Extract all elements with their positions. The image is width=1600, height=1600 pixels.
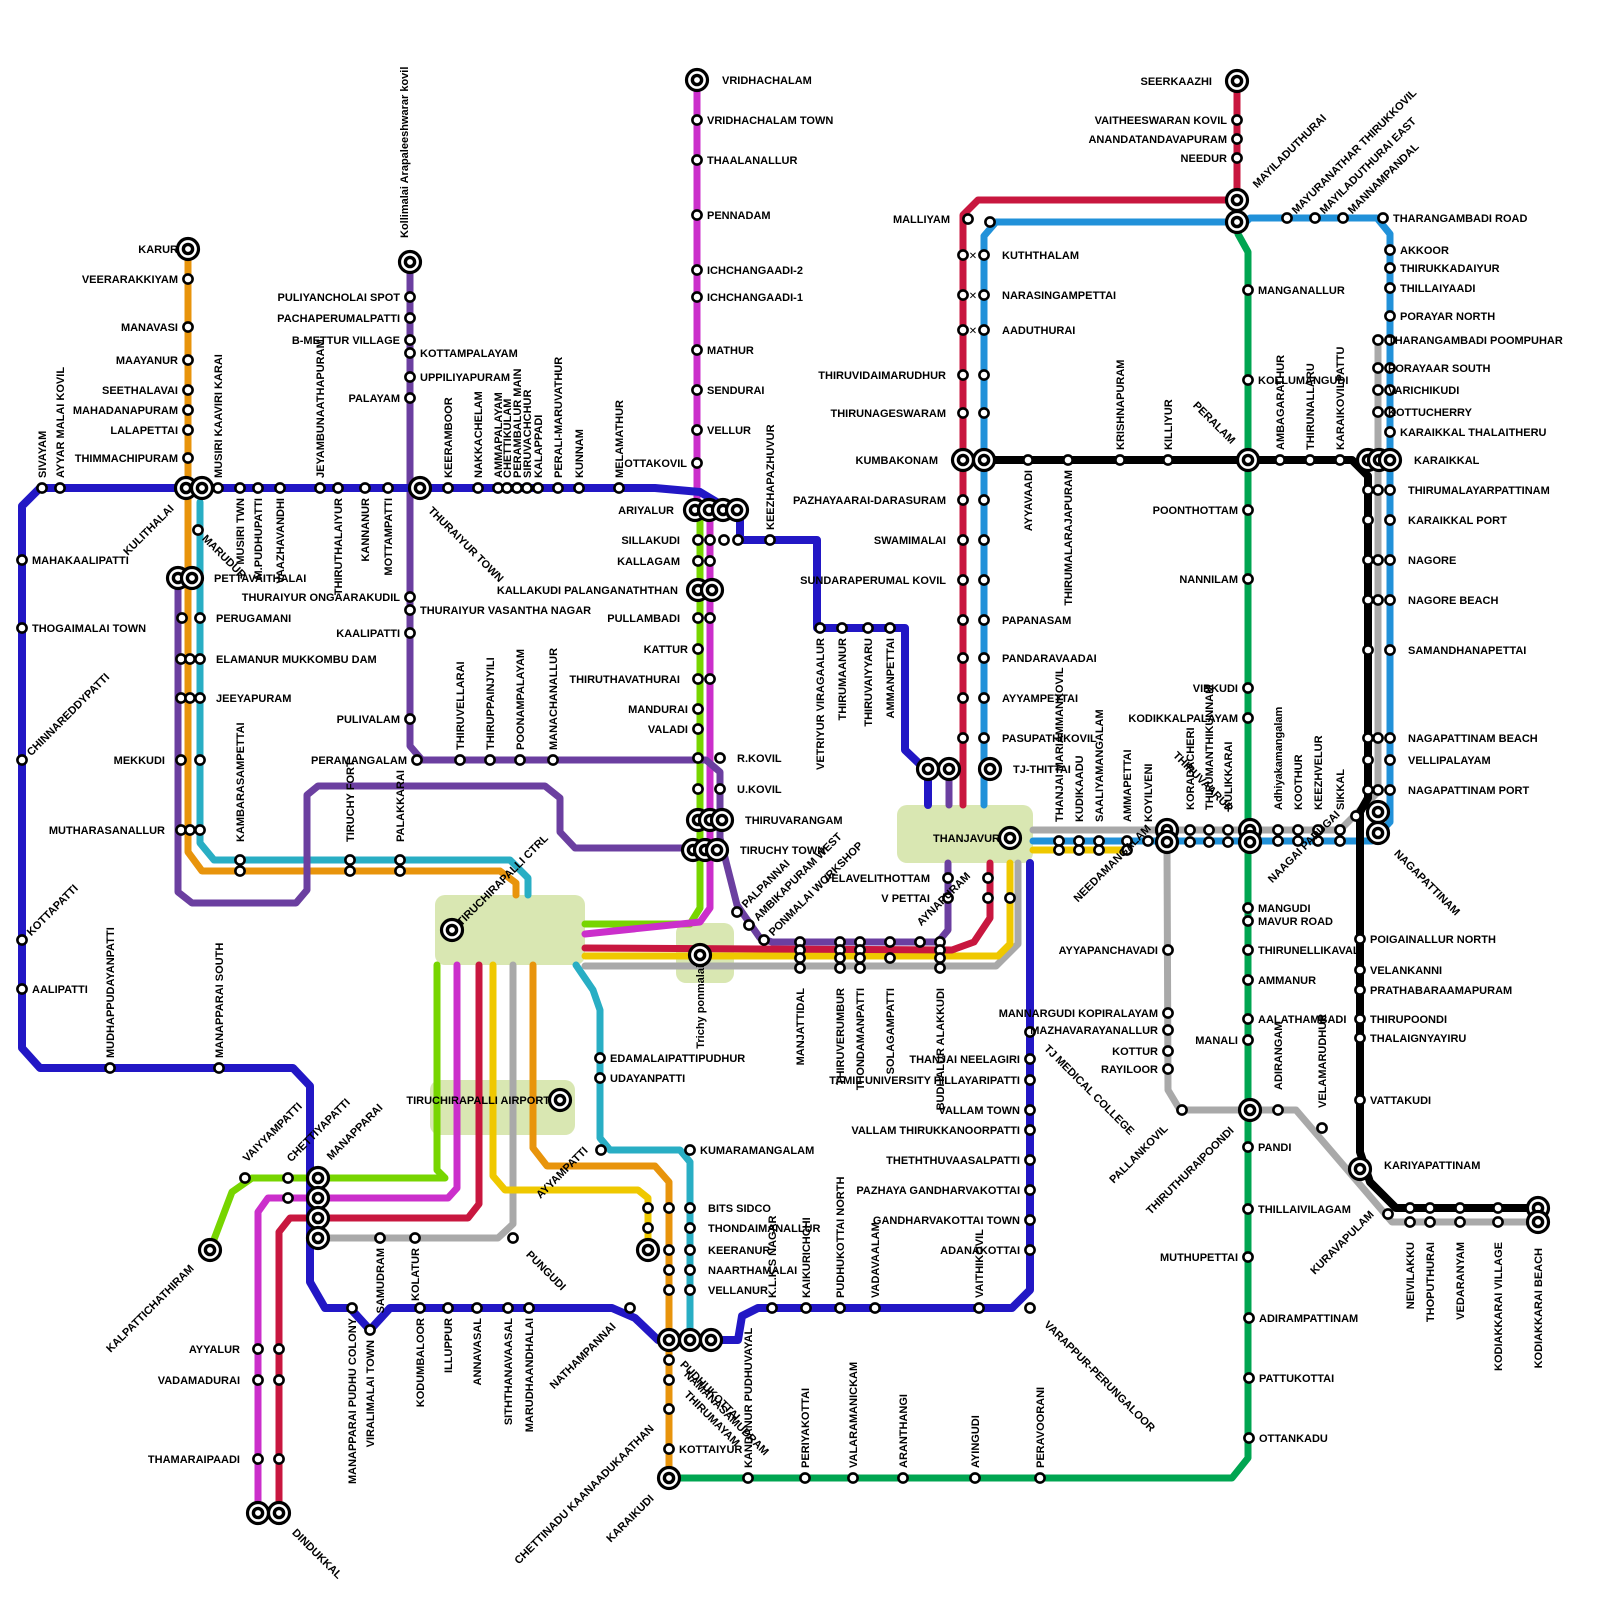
- station-label: THIRUPPAINJYILI: [485, 657, 497, 750]
- station-mangudi[interactable]: [1243, 903, 1252, 912]
- station-label: NEEDAMANGALAM: [1072, 823, 1154, 905]
- station-palakkarai[interactable]: [395, 855, 404, 875]
- station-tharangambadi-road[interactable]: [1378, 213, 1387, 222]
- station-mayiladuthurai-east[interactable]: [1310, 213, 1319, 222]
- station-melamathur[interactable]: [614, 483, 623, 492]
- station-kulithalai[interactable]: [176, 478, 213, 499]
- station-ayyar-malai-kovil[interactable]: [55, 483, 64, 492]
- station-koradacheri[interactable]: [1185, 825, 1194, 846]
- station-perali-maruvathur[interactable]: [553, 483, 562, 492]
- station-nakkachelam[interactable]: [473, 483, 482, 492]
- station-muthupettai[interactable]: [1243, 1252, 1252, 1261]
- station-manjattidal[interactable]: [795, 937, 804, 972]
- station-samudram[interactable]: [375, 1233, 384, 1242]
- station-aranthangi[interactable]: [898, 1473, 907, 1482]
- station-label: KOTTAMPALAYAM: [420, 348, 518, 360]
- station-kambarasampettai[interactable]: [235, 855, 244, 875]
- station-kannanur[interactable]: [360, 483, 369, 492]
- station-ariyalur[interactable]: [685, 500, 748, 521]
- station-kaalipatti[interactable]: [405, 628, 414, 637]
- station-label: KOTTAPATTI: [25, 883, 81, 939]
- route-cyan-trichy-pudhukottai[interactable]: [576, 965, 690, 1340]
- station-kunnam[interactable]: [574, 483, 583, 492]
- station-nagapattinam-port[interactable]: [1363, 785, 1394, 794]
- station-maayanur[interactable]: [183, 355, 192, 364]
- station-bits-sidco[interactable]: [643, 1203, 694, 1212]
- station-label: KRISHNAPURAM: [1115, 360, 1127, 450]
- station-label: PULLAMBADI: [607, 613, 680, 625]
- station-malliyam[interactable]: [963, 214, 994, 226]
- station-thirunallaru[interactable]: [1305, 455, 1314, 464]
- station-mutharasanallur[interactable]: [176, 825, 204, 834]
- station-label: MANNARGUDI KOPIRALAYAM: [999, 1008, 1158, 1020]
- station-label: MUSIRI KAAVIRI KARAI: [213, 354, 225, 478]
- station-label: MAYURANATHAR THIRUKKOVIL: [1290, 87, 1420, 217]
- station-label: KUTHTHALAM: [1002, 250, 1079, 262]
- station-thondamanpatti[interactable]: [855, 937, 864, 972]
- station-label: U.KOVIL: [737, 784, 782, 796]
- station-ammanur[interactable]: [1243, 975, 1252, 984]
- station-manapparai-south[interactable]: [214, 1063, 223, 1072]
- station-mandurai[interactable]: [693, 704, 702, 713]
- station-kodiakkarai-beach[interactable]: [1528, 1198, 1549, 1233]
- station-elamanur-mukkombu-dam[interactable]: [176, 654, 204, 663]
- station-mayiladuthurai[interactable]: [1227, 190, 1248, 233]
- station-vallam-thirukkanoorpatti[interactable]: [1025, 1125, 1034, 1134]
- station-karur[interactable]: [178, 239, 199, 260]
- station-thiruvarangam[interactable]: [688, 810, 733, 831]
- station-karaikkal[interactable]: [1358, 450, 1401, 471]
- station-prathabaraamapuram[interactable]: [1355, 985, 1364, 994]
- station-box-marker-tiruchirapalli-airport[interactable]: [550, 1090, 571, 1111]
- station-ottankadu[interactable]: [1244, 1433, 1253, 1442]
- station-kottampalayam[interactable]: [405, 348, 414, 357]
- station-label: THIRUTHALAIYUR: [333, 498, 345, 595]
- station-annavasal[interactable]: [472, 1303, 481, 1312]
- station-tiruchy-fort[interactable]: [345, 855, 354, 875]
- station-ayyampettai[interactable]: [958, 693, 988, 702]
- station-mannampandal[interactable]: [1338, 213, 1347, 222]
- station-theththuvaasalpatti[interactable]: [1025, 1155, 1034, 1164]
- station-vellur[interactable]: [692, 425, 701, 434]
- station-label: THANJAVUR: [933, 833, 1000, 845]
- station-papanasam[interactable]: [958, 615, 988, 624]
- station-label: NAARTHAMALAI: [708, 1265, 797, 1277]
- station-label: PALAKKARAI: [395, 770, 407, 842]
- route-lime-ariyalur-trichy[interactable]: [585, 512, 700, 924]
- station-velankanni[interactable]: [1355, 965, 1364, 974]
- station-siththanavaasal[interactable]: [503, 1303, 512, 1312]
- station-kodiakkarai-village[interactable]: [1493, 1203, 1502, 1226]
- station-sikkal[interactable]: [1335, 825, 1344, 845]
- station-aynapuram[interactable]: [915, 937, 924, 946]
- station-swamimalai[interactable]: [958, 535, 988, 544]
- station-aalathambadi[interactable]: [1243, 1014, 1252, 1023]
- station-kulikkarai[interactable]: [1223, 825, 1232, 846]
- station-label: NAAGAI PADUGAI: [1266, 809, 1343, 886]
- station-label: OTTANKADU: [1259, 1433, 1328, 1445]
- station-thirumalarajapuram[interactable]: [1063, 455, 1072, 464]
- station-manali[interactable]: [1243, 1035, 1252, 1044]
- station-ottakovil[interactable]: [692, 458, 701, 467]
- station-ambikapuram-west[interactable]: [744, 920, 753, 929]
- station-thalaignyayiru[interactable]: [1355, 1033, 1364, 1042]
- station-label: PERALAM: [1190, 400, 1237, 447]
- station-jeyambunaathapuram[interactable]: [315, 483, 324, 492]
- station-label: KODIKKALPALAYAM: [1128, 713, 1238, 725]
- station-poonthottam[interactable]: [1243, 505, 1252, 514]
- station-killiyur[interactable]: [1163, 455, 1172, 464]
- station-mahadanapuram[interactable]: [183, 405, 192, 414]
- station-vedaranyam[interactable]: [1455, 1203, 1464, 1226]
- station-pudhukottai[interactable]: [659, 1330, 722, 1351]
- station-veerarakkiyam[interactable]: [183, 274, 192, 283]
- station-manganallur[interactable]: [1243, 285, 1252, 294]
- station-mottampatti[interactable]: [383, 483, 392, 492]
- station-label: VADAMADURAI: [158, 1375, 240, 1387]
- station-label: Trichy ponmalai: [695, 965, 707, 1049]
- station-kodikkalpalayam[interactable]: [1243, 713, 1252, 722]
- station-label: PASUPATHIKOVIL: [1002, 733, 1097, 745]
- station-vridhachalam[interactable]: [687, 70, 708, 91]
- station-label: MANALI: [1195, 1035, 1238, 1047]
- station-nagapattinam-beach[interactable]: [1363, 733, 1394, 742]
- station-kalpattichathiram[interactable]: [200, 1240, 221, 1261]
- station-label: SAMUDRAM: [375, 1248, 387, 1313]
- station-mavur-road[interactable]: [1243, 916, 1252, 925]
- station-thuraiyur-town[interactable]: [410, 478, 431, 499]
- station-uppiliyapuram[interactable]: [405, 372, 414, 381]
- station-label: PUNGUDI: [523, 1249, 567, 1293]
- station-vallam-town[interactable]: [1025, 1105, 1034, 1114]
- station-label: THIRUMALARAJAPURAM: [1063, 470, 1075, 606]
- station-mazhavarayanallur[interactable]: [1163, 1025, 1172, 1034]
- station-label: PRATHABARAAMAPURAM: [1370, 985, 1512, 997]
- station-poonampalayam[interactable]: [515, 755, 524, 764]
- station-tj-thittai[interactable]: [918, 759, 1001, 780]
- station-pattukottai[interactable]: [1244, 1373, 1253, 1382]
- station-peramangalam[interactable]: [412, 755, 421, 764]
- station-porayar-north[interactable]: [1385, 311, 1394, 320]
- station-ponmalai-workshop[interactable]: [759, 935, 768, 944]
- station-palayam[interactable]: [405, 393, 414, 402]
- station-adirangam[interactable]: [1273, 1105, 1282, 1114]
- station-thirumayam[interactable]: [664, 1375, 673, 1384]
- route-purple-pettavaithalai-tiruchytown[interactable]: [178, 582, 690, 903]
- station-label: AYYAVAADI: [1023, 470, 1035, 531]
- station-label: KARAIKKAL: [1414, 455, 1480, 467]
- station-label: THIRUNAGESWARAM: [831, 408, 947, 420]
- station-seerkaazhi[interactable]: [1227, 71, 1248, 92]
- station-naagai-padugai[interactable]: [1351, 811, 1360, 820]
- station-thiruvaiyyaru[interactable]: [863, 623, 872, 632]
- station-ambagarathur[interactable]: [1275, 455, 1284, 464]
- station-jeeyapuram[interactable]: [176, 693, 204, 702]
- station-pullambadi[interactable]: [693, 613, 714, 622]
- station-nathampannai[interactable]: [625, 1303, 634, 1312]
- station-seethalavai[interactable]: [183, 385, 192, 394]
- station-label: PALLANKOVIL: [1107, 1123, 1170, 1186]
- station-label: NARASINGAMPETTAI: [1002, 290, 1116, 302]
- station-virkudi[interactable]: [1243, 683, 1252, 692]
- station-thanjai-mariammankovil[interactable]: [1054, 836, 1063, 854]
- station-mayuranathar-thirukkovil[interactable]: [1282, 213, 1291, 222]
- station-kariyapattinam[interactable]: [1350, 1159, 1371, 1180]
- station-pandaravaadai[interactable]: [958, 653, 988, 662]
- station-thogaimalai-town[interactable]: [17, 623, 26, 632]
- station-varappur-perungaloor[interactable]: [1025, 1303, 1034, 1312]
- station-label: SEERKAAZHI: [1140, 76, 1212, 88]
- station-thiruverumbur[interactable]: [835, 937, 844, 972]
- station-kottur[interactable]: [1163, 1046, 1172, 1055]
- station-velamarudhur[interactable]: [1317, 1123, 1326, 1132]
- station-chettikulam[interactable]: [502, 483, 511, 492]
- station-peravoorani[interactable]: [1035, 1473, 1044, 1482]
- station-kattur[interactable]: [693, 644, 702, 653]
- station-akkoor[interactable]: [1385, 245, 1394, 254]
- station-label: KURAVAPULAM: [1308, 1209, 1376, 1277]
- station-label: CHINNAREDDYPATTI: [25, 671, 112, 758]
- station-label: B-METTUR VILLAGE: [292, 335, 400, 347]
- station-chinnareddypatti[interactable]: [17, 755, 26, 764]
- station-nagore[interactable]: [1363, 555, 1394, 564]
- station-thoputhurai[interactable]: [1425, 1203, 1434, 1226]
- station-ayyalur[interactable]: [253, 1344, 283, 1353]
- station-label: THOGAIMALAI TOWN: [32, 623, 146, 635]
- station-m-pudhupatti[interactable]: [253, 483, 262, 492]
- station-label: KALPATTICHATHIRAM: [104, 1263, 196, 1355]
- station-neivilakku[interactable]: [1405, 1203, 1414, 1226]
- station-pungudi[interactable]: [508, 1233, 517, 1242]
- station-marudhaandhalai[interactable]: [524, 1303, 533, 1312]
- station-vaithikovil[interactable]: [974, 1303, 983, 1312]
- station-mahakaalipatti[interactable]: [17, 555, 26, 564]
- station-budhalur-alakkudi[interactable]: [935, 937, 944, 972]
- station-karaikkal-thalaitheru[interactable]: [1385, 427, 1394, 436]
- station-box-marker-thanjavur[interactable]: [1000, 828, 1021, 849]
- station-mathur[interactable]: [692, 345, 701, 354]
- station-pasupathikovil[interactable]: [958, 733, 988, 742]
- station-thiruthuraipoondi[interactable]: [1240, 1100, 1261, 1121]
- station-thiruthavathurai[interactable]: [693, 674, 714, 683]
- station-manapparai-pudhu-colony[interactable]: [347, 1303, 356, 1312]
- station-ichchangaadi-1[interactable]: [692, 292, 701, 301]
- station-edamalaipattipudhur[interactable]: [595, 1053, 604, 1062]
- station-naarthamalai[interactable]: [664, 1265, 694, 1274]
- station-label: VRIDHACHALAM TOWN: [707, 115, 833, 127]
- station-keezhapazhuvur[interactable]: [765, 535, 774, 544]
- station-siruvachchur[interactable]: [522, 483, 531, 492]
- station-label: ICHCHANGAADI-1: [707, 292, 803, 304]
- station-ayyavaadi[interactable]: [1023, 455, 1032, 464]
- transfer-x-icon: ✕: [969, 291, 977, 302]
- station-vridhachalam-town[interactable]: [692, 115, 701, 124]
- station-anandatandavapuram[interactable]: [1232, 134, 1241, 143]
- station-viralimalai-town[interactable]: [365, 1325, 374, 1334]
- station-valaramanickam[interactable]: [848, 1473, 857, 1482]
- station-adanakottai[interactable]: [1025, 1245, 1034, 1254]
- station-k-l-k-s-nagar[interactable]: [767, 1303, 776, 1312]
- station-thaalanallur[interactable]: [692, 155, 701, 164]
- station-kandanur-pudhuvayal[interactable]: [743, 1473, 752, 1482]
- station-label: KOTTUCHERRY: [1388, 407, 1473, 419]
- station-thimmachipuram[interactable]: [183, 453, 192, 462]
- station-saaliyamangalam[interactable]: [1094, 836, 1103, 854]
- station-rayiloor[interactable]: [1163, 1064, 1172, 1073]
- station-vaazhavandhi[interactable]: [275, 483, 284, 492]
- station-dindukkal[interactable]: [248, 1503, 290, 1524]
- station-adirampattinam[interactable]: [1244, 1313, 1253, 1322]
- station-kollimalai-arapaleeshwarar-kovil[interactable]: [400, 252, 421, 273]
- station-vellanur[interactable]: [664, 1285, 694, 1294]
- station-kallagam[interactable]: [693, 556, 714, 565]
- station-mannargudi-kopiralayam[interactable]: [1163, 1008, 1172, 1017]
- station-ayingudi[interactable]: [970, 1473, 979, 1482]
- station-ayyampatti[interactable]: [596, 1145, 605, 1154]
- station-kottaiyur[interactable]: [664, 1444, 673, 1453]
- station-label: KATTUR: [644, 644, 688, 656]
- station-marudur[interactable]: [193, 525, 202, 534]
- station-sendurai[interactable]: [692, 385, 701, 394]
- station-label: KEERANUR: [708, 1245, 770, 1257]
- station-valadi[interactable]: [693, 724, 702, 733]
- station-pazhayaarai-darasuram[interactable]: [958, 495, 988, 504]
- station-namanasamudram[interactable]: [664, 1355, 673, 1364]
- station-label: PERAVOORANI: [1035, 1387, 1047, 1468]
- station-kaikurichchi[interactable]: [801, 1303, 810, 1312]
- station-pazhaya-gandharvakottai[interactable]: [1025, 1185, 1034, 1194]
- station-sivayam[interactable]: [37, 483, 46, 492]
- station-musiri-twn[interactable]: [235, 483, 244, 492]
- station-label: KODUMBALOOR: [415, 1318, 427, 1407]
- station-ayyapanchavadi[interactable]: [1163, 945, 1172, 954]
- station-vaitheeswaran-kovil[interactable]: [1232, 115, 1241, 124]
- station-chettinadu-kaanaadukaathan[interactable]: [664, 1404, 673, 1413]
- station-pudhukottai-north[interactable]: [835, 1303, 844, 1312]
- station-pandi[interactable]: [1243, 1142, 1252, 1151]
- station-thillaiyaadi[interactable]: [1385, 283, 1394, 292]
- station-label: THIRUNELLIKAVAL: [1258, 945, 1360, 957]
- station-thamaraipaadi[interactable]: [253, 1454, 283, 1463]
- station-thirumaanur[interactable]: [837, 623, 846, 632]
- station-karaikudi[interactable]: [659, 1468, 680, 1489]
- station-thuraiyur-ongaarakudil[interactable]: [405, 592, 414, 601]
- station-label: SWAMIMALAI: [874, 535, 946, 547]
- station-udayanpatti[interactable]: [595, 1073, 604, 1082]
- station-tamil-university-pillayaripatti[interactable]: [1025, 1075, 1034, 1084]
- station-label: NAGORE BEACH: [1408, 595, 1499, 607]
- station-musiri-kaaviri-karai[interactable]: [213, 483, 222, 492]
- station-pachaperumalpatti[interactable]: [405, 313, 414, 322]
- station-sundaraperumal-kovil[interactable]: [958, 575, 988, 584]
- station-sillakudi[interactable]: [693, 535, 742, 544]
- station-vaiyyampatti[interactable]: [240, 1173, 249, 1182]
- station-keeramboor[interactable]: [443, 483, 452, 492]
- station-kumaramangalam[interactable]: [685, 1145, 694, 1154]
- station-nagore-beach[interactable]: [1363, 595, 1394, 604]
- station-kalappadi[interactable]: [533, 483, 542, 492]
- station-manachanallur[interactable]: [548, 755, 557, 764]
- station-thiruvaarur[interactable]: [1240, 820, 1261, 853]
- station-pettavaithalai[interactable]: [168, 568, 203, 589]
- station-illuppur[interactable]: [443, 1303, 452, 1312]
- station-palpannai[interactable]: [732, 907, 741, 916]
- station-vetriyur-viragaalur[interactable]: [815, 623, 824, 632]
- station-label: PORAYAAR SOUTH: [1388, 363, 1491, 375]
- station-vadavaalam[interactable]: [870, 1303, 879, 1312]
- station-adhiyakamangalam[interactable]: [1273, 825, 1282, 845]
- station-peralam[interactable]: [1238, 450, 1259, 471]
- station-lalapettai[interactable]: [183, 425, 192, 434]
- station-pulivalam[interactable]: [405, 714, 414, 723]
- station-ichchangaadi-2[interactable]: [692, 265, 701, 274]
- station-manavasi[interactable]: [183, 322, 192, 331]
- station-label: VELLANUR: [708, 1285, 768, 1297]
- station-thirupoondi[interactable]: [1355, 1014, 1364, 1023]
- station-kumbakonam[interactable]: [953, 450, 995, 471]
- station-b-mettur-village[interactable]: [405, 335, 414, 344]
- station-label: PAPANASAM: [1002, 615, 1071, 627]
- station-vadamadurai[interactable]: [253, 1375, 283, 1384]
- station-pallankovil[interactable]: [1177, 1105, 1186, 1114]
- station-kottapatti[interactable]: [17, 935, 26, 944]
- station-thillaivilagam[interactable]: [1243, 1204, 1252, 1213]
- station-aalipatti[interactable]: [17, 984, 26, 993]
- station-kudikaadu[interactable]: [1074, 836, 1083, 854]
- station-thirukkadaiyur[interactable]: [1385, 263, 1394, 272]
- station-perambalur-main[interactable]: [512, 483, 521, 492]
- station-thiruppainjyili[interactable]: [485, 755, 494, 764]
- station-label: AMMANUR: [1258, 975, 1316, 987]
- station-thirumanthikunnam[interactable]: [1204, 825, 1213, 846]
- station-thirunellikaval[interactable]: [1243, 945, 1252, 954]
- station-kollumangudi[interactable]: [1243, 375, 1252, 384]
- station-label: THILLAIVILAGAM: [1258, 1204, 1351, 1216]
- station-needamangalam[interactable]: [1157, 820, 1178, 853]
- station-kodumbaloor[interactable]: [415, 1303, 424, 1312]
- station-thuraiyur-vasantha-nagar[interactable]: [405, 605, 414, 614]
- station-krishnapuram[interactable]: [1115, 455, 1124, 464]
- station-periyakottai[interactable]: [800, 1473, 809, 1482]
- station-tiruchy-town[interactable]: [683, 840, 728, 861]
- station-gandharvakottai-town[interactable]: [1025, 1215, 1034, 1224]
- station-karaikovilpattu[interactable]: [1335, 455, 1344, 464]
- station-thiruvidaimarudhur[interactable]: [958, 370, 988, 379]
- station-nannilam[interactable]: [1243, 574, 1252, 583]
- station-puliyancholai-spot[interactable]: [405, 292, 414, 301]
- route-lime-trichy-kalpattichathiram[interactable]: [210, 965, 445, 1250]
- station-thirumalayarpattinam[interactable]: [1363, 485, 1394, 494]
- station-thanjai-neelagiri[interactable]: [1025, 1054, 1034, 1063]
- station-vattakudi[interactable]: [1355, 1095, 1364, 1104]
- station-chettiyapatti[interactable]: [283, 1173, 292, 1202]
- station-pennadam[interactable]: [692, 210, 701, 219]
- station-kallakudi-palanganaththan[interactable]: [688, 580, 723, 601]
- station-thiruthalaiyur[interactable]: [333, 483, 342, 492]
- station-ammanpettai[interactable]: [885, 623, 894, 632]
- station-label: POIGAINALLUR NORTH: [1370, 934, 1496, 946]
- station-box-marker-trichy-ponmalai[interactable]: [690, 945, 711, 966]
- station-label: THILLAIYAADI: [1400, 283, 1475, 295]
- station-poigainallur-north[interactable]: [1355, 934, 1364, 943]
- station-kuravapulam[interactable]: [1383, 1209, 1392, 1218]
- station-needur[interactable]: [1232, 153, 1241, 162]
- route-purple-kollimalai-thanjavur[interactable]: [410, 262, 948, 942]
- station-thiruvellarai[interactable]: [455, 755, 464, 764]
- station-mudhappudayanpatti[interactable]: [105, 1063, 114, 1072]
- station-kolatur[interactable]: [410, 1233, 419, 1242]
- station-thirunageswaram[interactable]: [958, 408, 988, 417]
